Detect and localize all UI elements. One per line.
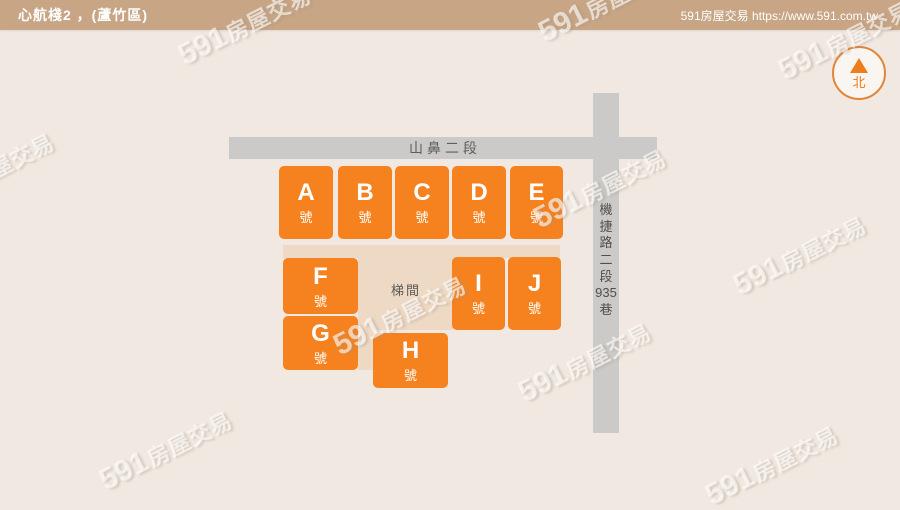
watermark: 591 房屋交易 [0, 124, 60, 220]
unit-letter: A [297, 181, 314, 205]
north-label: 北 [852, 76, 865, 89]
unit-suffix: 號 [314, 295, 327, 308]
watermark: 591 房屋交易 [700, 417, 844, 510]
unit-block-c: C 號 [395, 166, 449, 239]
unit-block-i: I 號 [452, 257, 505, 330]
unit-suffix: 號 [314, 352, 327, 365]
north-compass: 北 [832, 46, 886, 100]
stairwell-label: 梯間 [375, 280, 437, 299]
unit-block-a: A 號 [279, 166, 333, 239]
watermark-digits: 591 [94, 445, 154, 498]
unit-letter: B [356, 181, 373, 205]
unit-letter: I [475, 272, 482, 296]
watermark-word: 房屋交易 [775, 208, 872, 278]
brand-url: 591房屋交易 https://www.591.com.tw [681, 7, 878, 24]
unit-suffix: 號 [530, 211, 543, 224]
horizontal-road-label: 山鼻二段 [405, 138, 481, 158]
unit-block-e: E 號 [510, 166, 563, 239]
vertical-road-char: 路 [599, 236, 612, 250]
vertical-road-char: 段 [599, 270, 612, 284]
unit-suffix: 號 [299, 211, 312, 224]
page-title: 心航棧2 ，(蘆竹區) [18, 5, 148, 25]
vertical-road-char: 二 [599, 253, 612, 267]
unit-letter: F [313, 265, 328, 289]
unit-letter: H [402, 339, 419, 363]
walkway-column [358, 245, 374, 370]
unit-block-g: G 號 [283, 316, 358, 370]
unit-suffix: 號 [528, 302, 541, 315]
vertical-road-char: 巷 [599, 303, 612, 317]
unit-letter: E [528, 181, 544, 205]
unit-block-d: D 號 [452, 166, 506, 239]
watermark-word: 房屋交易 [0, 125, 59, 195]
unit-letter: D [470, 181, 487, 205]
vertical-road-char: 捷 [599, 220, 612, 234]
unit-block-b: B 號 [338, 166, 392, 239]
unit-letter: J [528, 272, 541, 296]
unit-suffix: 號 [415, 211, 428, 224]
vertical-road-char: 935 [595, 286, 617, 300]
unit-suffix: 號 [472, 211, 485, 224]
unit-suffix: 號 [472, 302, 485, 315]
unit-letter: G [311, 322, 330, 346]
unit-block-j: J 號 [508, 257, 561, 330]
horizontal-road: 山鼻二段 [229, 137, 657, 159]
unit-block-h: H 號 [373, 333, 448, 388]
watermark-digits: 591 [513, 357, 573, 410]
header-bar: 心航棧2 ，(蘆竹區) 591房屋交易 https://www.591.com.… [0, 0, 900, 30]
watermark: 591 房屋交易 [94, 402, 238, 498]
watermark-digits: 591 [728, 250, 788, 303]
watermark-digits: 591 [773, 35, 833, 88]
watermark-digits: 591 [700, 460, 760, 510]
unit-block-f: F 號 [283, 258, 358, 314]
north-arrow-icon [850, 58, 868, 73]
unit-letter: C [413, 181, 430, 205]
watermark-word: 房屋交易 [747, 418, 844, 488]
unit-suffix: 號 [404, 369, 417, 382]
watermark-word: 房屋交易 [141, 403, 238, 473]
site-plan-map: 心航棧2 ，(蘆竹區) 591房屋交易 https://www.591.com.… [0, 0, 900, 510]
vertical-road-label: 機 捷 路 二 段 935 巷 [591, 203, 621, 316]
vertical-road-char: 機 [599, 203, 612, 217]
unit-suffix: 號 [358, 211, 371, 224]
watermark: 591 房屋交易 [728, 207, 872, 303]
